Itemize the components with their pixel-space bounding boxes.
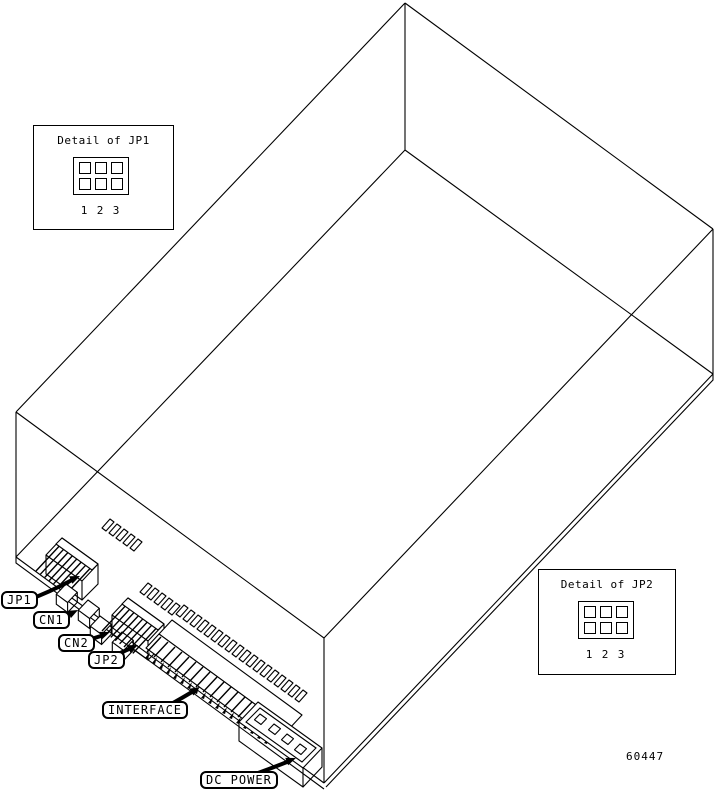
jumper-pad bbox=[584, 622, 596, 634]
jumper-pad bbox=[616, 622, 628, 634]
detail-jp2-pin-grid bbox=[578, 601, 634, 639]
drive-connector-diagram: Detail of JP1 1 2 3 Detail of JP2 1 2 bbox=[0, 0, 714, 798]
pin-number: 1 bbox=[77, 204, 91, 217]
jumper-pad bbox=[95, 162, 107, 174]
jumper-pad bbox=[600, 622, 612, 634]
detail-jp1-title: Detail of JP1 bbox=[34, 134, 173, 147]
callout-interface: INTERFACE bbox=[102, 701, 188, 719]
jumper-pad bbox=[79, 162, 91, 174]
callout-dc-power: DC POWER bbox=[200, 771, 278, 789]
jumper-pad bbox=[111, 178, 123, 190]
pin-number: 3 bbox=[109, 204, 123, 217]
diagram-artwork bbox=[0, 0, 714, 798]
figure-number: 60447 bbox=[626, 750, 664, 763]
pin-number: 3 bbox=[614, 648, 628, 661]
callout-jp2: JP2 bbox=[88, 651, 125, 669]
callout-cn2: CN2 bbox=[58, 634, 95, 652]
jumper-pad bbox=[79, 178, 91, 190]
jumper-pad bbox=[616, 606, 628, 618]
detail-jp2-pin-numbers: 1 2 3 bbox=[582, 648, 628, 661]
jumper-pad bbox=[95, 178, 107, 190]
jumper-pad bbox=[584, 606, 596, 618]
jp1-connector bbox=[36, 519, 142, 600]
pin-number: 2 bbox=[598, 648, 612, 661]
detail-jp1-pin-numbers: 1 2 3 bbox=[77, 204, 123, 217]
jumper-pad bbox=[600, 606, 612, 618]
detail-box-jp2: Detail of JP2 1 2 3 bbox=[538, 569, 676, 675]
detail-jp2-title: Detail of JP2 bbox=[539, 578, 675, 591]
detail-box-jp1: Detail of JP1 1 2 3 bbox=[33, 125, 174, 230]
detail-jp1-pin-grid bbox=[73, 157, 129, 195]
callout-cn1: CN1 bbox=[33, 611, 70, 629]
jumper-pad bbox=[111, 162, 123, 174]
pin-number: 2 bbox=[93, 204, 107, 217]
callout-jp1: JP1 bbox=[1, 591, 38, 609]
pin-number: 1 bbox=[582, 648, 596, 661]
